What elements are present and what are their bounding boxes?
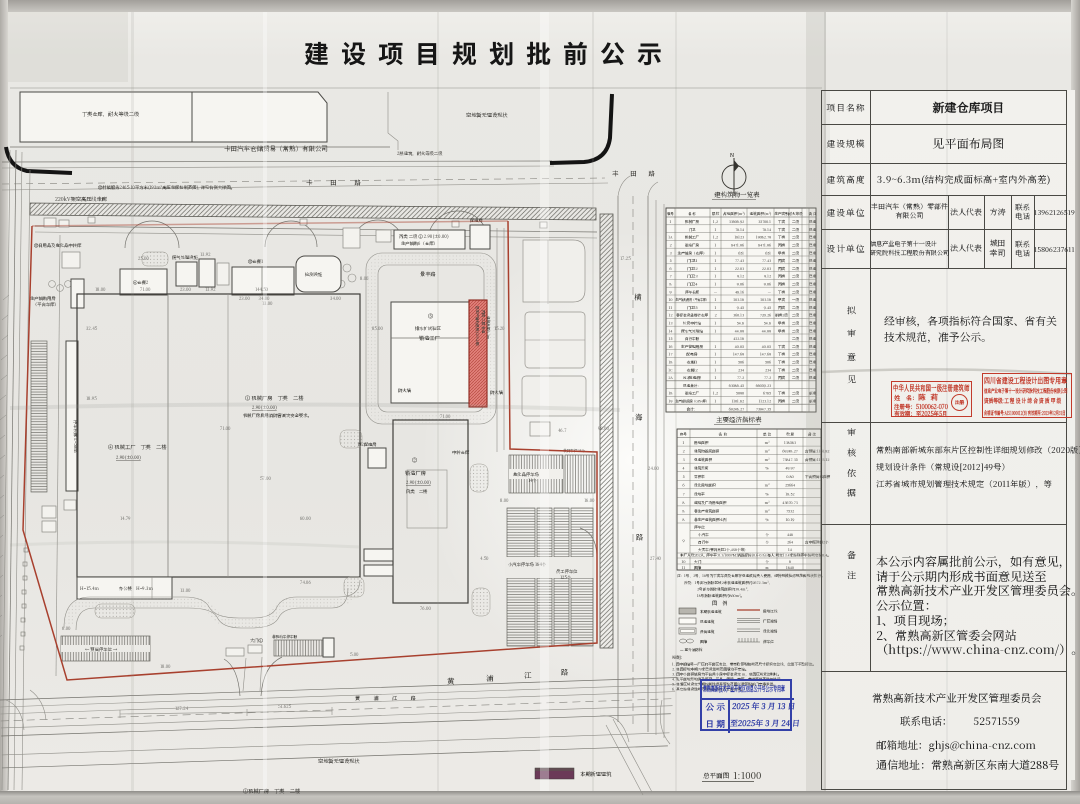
svg-text:66059.23: 66059.23 (756, 384, 771, 389)
svg-text:220kV架空高压线走廊: 220kV架空高压线走廊 (55, 196, 107, 203)
svg-text:14个: 14个 (528, 478, 537, 484)
svg-text:18.95: 18.95 (86, 396, 97, 402)
svg-text:1: 1 (714, 368, 717, 373)
svg-text:25664: 25664 (785, 484, 796, 489)
svg-text:40.05: 40.05 (762, 345, 771, 350)
svg-text:77.43: 77.43 (762, 259, 771, 264)
svg-text:18: 18 (668, 361, 673, 366)
svg-text:用地面积: 用地面积 (693, 440, 709, 446)
svg-text:停车长廊 L=50m: 停车长廊 L=50m (72, 419, 79, 452)
svg-text:10.19: 10.19 (785, 518, 795, 523)
svg-text:63086.45: 63086.45 (729, 384, 744, 389)
svg-text:非机动车停车棚: 非机动车停车棚 (271, 634, 298, 640)
svg-text:14.79: 14.79 (120, 516, 131, 522)
svg-text:员工停车位: 员工停车位 (555, 568, 578, 575)
svg-text:建构筑物一览表: 建构筑物一览表 (713, 190, 760, 199)
svg-text:13.92: 13.92 (205, 287, 216, 293)
svg-text:m²: m² (765, 500, 771, 506)
svg-text:103.16: 103.16 (759, 298, 771, 303)
svg-text:门卫4: 门卫4 (687, 282, 699, 288)
svg-text:40.05: 40.05 (735, 345, 744, 350)
svg-text:二级: 二级 (792, 227, 800, 233)
svg-text:丰 田 路: 丰 田 路 (612, 169, 660, 178)
svg-text:大客车(带卸货区1个,4S6个等): 大客车(带卸货区1个,4S6个等) (697, 547, 746, 553)
svg-text:9.12: 9.12 (764, 275, 771, 280)
svg-text:⑬仓棚1: ⑬仓棚1 (248, 259, 264, 265)
svg-text:④ 机械工厂 丁类 二楼: ④ 机械工厂 丁类 二楼 (108, 444, 167, 451)
svg-text:二级: 二级 (792, 219, 800, 225)
svg-text:门卫2: 门卫2 (687, 266, 698, 272)
svg-text:总建筑面积: 总建筑面积 (694, 457, 712, 463)
svg-text:风类 二楼: 风类 二楼 (405, 489, 428, 495)
svg-text:1: 1 (714, 275, 717, 280)
svg-text:m²: m² (765, 508, 771, 514)
svg-text:名 称: 名 称 (687, 211, 697, 217)
svg-text:门卫: 门卫 (689, 227, 696, 233)
svg-text:丙类: 丙类 (777, 266, 786, 272)
svg-text:数 量: 数 量 (786, 431, 795, 437)
svg-text:2: 2 (714, 314, 716, 319)
svg-text:单 位: 单 位 (762, 431, 772, 437)
svg-text:m²: m² (765, 440, 771, 446)
svg-text:道路及广场用地面积: 道路及广场用地面积 (693, 500, 727, 506)
svg-text:8.00: 8.00 (360, 276, 369, 282)
svg-text:丁类: 丁类 (777, 352, 786, 358)
svg-text:二级: 二级 (792, 344, 800, 350)
svg-text:2.90(±0.00): 2.90(±0.00) (406, 480, 431, 486)
svg-text:生产辅房（仓库）: 生产辅房（仓库） (676, 250, 706, 256)
svg-text:35700.1: 35700.1 (758, 220, 771, 225)
svg-text:耐火等级: 耐火等级 (787, 211, 803, 217)
svg-text:机械厂房启用消防窗减灾安全要求。: 机械厂房启用消防窗减灾安全要求。 (243, 413, 312, 419)
svg-text:18: 18 (668, 392, 673, 397)
svg-text:建筑物基底面积: 建筑物基底面积 (694, 449, 720, 455)
svg-text:19082.79: 19082.79 (755, 236, 771, 241)
svg-text:大门: 大门 (693, 559, 702, 565)
svg-text:建筑高度6.3m: 建筑高度6.3m (485, 316, 491, 339)
svg-text:10: 10 (681, 560, 686, 565)
svg-text:m²: m² (765, 483, 771, 489)
svg-text:生产辅助用房（平台车库）: 生产辅助用房（平台车库） (675, 297, 709, 303)
svg-text:N: N (729, 152, 735, 159)
svg-text:1: 1 (714, 244, 717, 249)
svg-text:8471.96: 8471.96 (758, 244, 771, 249)
svg-text:15: 15 (668, 337, 673, 342)
svg-text:建筑密度: 建筑密度 (694, 466, 709, 472)
svg-text:74.06: 74.06 (300, 580, 312, 586)
svg-text:44.99: 44.99 (762, 329, 771, 334)
svg-text:黄 浦 江 路: 黄 浦 江 路 (355, 695, 422, 702)
svg-text:6: 6 (789, 560, 791, 565)
svg-text:3: 3 (669, 251, 671, 256)
svg-text:检测设施: 检测设施 (304, 272, 323, 278)
svg-text:1: 1 (714, 251, 717, 256)
svg-text:77.43: 77.43 (735, 259, 744, 264)
svg-text:19: 19 (668, 400, 673, 405)
svg-text:保留建筑: 保留建筑 (699, 629, 715, 635)
svg-text:15.20: 15.20 (494, 326, 505, 332)
svg-text:1: 1 (714, 361, 717, 366)
svg-text:1: 1 (714, 329, 717, 334)
svg-text:73847.35: 73847.35 (782, 458, 797, 463)
svg-text:234: 234 (765, 368, 772, 373)
svg-text:卡田汽车仓储贸易（常熟）有限公司: 卡田汽车仓储贸易（常熟）有限公司 (224, 144, 329, 153)
svg-text:4.50: 4.50 (480, 556, 489, 562)
svg-text:二级: 二级 (792, 360, 800, 366)
svg-text:路: 路 (560, 667, 569, 678)
svg-text:9.06: 9.06 (737, 283, 744, 288)
svg-text:9: 9 (682, 539, 684, 544)
svg-text:浦: 浦 (486, 673, 494, 684)
svg-text:空地暂无建设现状: 空地暂无建设现状 (317, 758, 360, 765)
svg-text:2.90(±0.00): 2.90(±0.00) (116, 455, 141, 461)
svg-text:二级: 二级 (792, 305, 800, 311)
svg-text:1: 1 (682, 441, 685, 446)
svg-text:147.69: 147.69 (732, 353, 744, 358)
svg-text:非生产建筑面积比例: 非生产建筑面积比例 (693, 517, 727, 523)
svg-text:1: 1 (714, 283, 717, 288)
svg-text:危化品停车场: 危化品停车场 (513, 471, 539, 478)
svg-text:32.45: 32.45 (86, 326, 97, 332)
svg-text:层数: 层数 (711, 211, 721, 217)
svg-text:9.45: 9.45 (764, 306, 771, 311)
svg-text:1101.82: 1101.82 (731, 400, 744, 405)
svg-text:7532: 7532 (786, 509, 794, 514)
svg-text:77.2: 77.2 (737, 376, 744, 381)
svg-text:m²: m² (765, 449, 771, 455)
svg-text:1: 1 (714, 400, 717, 405)
svg-text:丙类: 丙类 (777, 282, 786, 288)
svg-text:绿化道路: 绿化道路 (762, 629, 778, 635)
svg-text:生产类别: 生产类别 (773, 211, 789, 217)
svg-text:5090: 5090 (736, 392, 744, 397)
svg-text:丁类: 丁类 (777, 391, 786, 397)
svg-text:丁类: 丁类 (777, 289, 786, 295)
svg-text:围墙: 围墙 (700, 639, 708, 645)
svg-text:容积率: 容积率 (693, 474, 705, 480)
svg-text:69248.27: 69248.27 (782, 450, 797, 455)
svg-text:44.99: 44.99 (735, 329, 744, 334)
svg-text:二级: 二级 (792, 367, 800, 373)
svg-text:防火墙: 防火墙 (398, 387, 412, 394)
svg-text:78.14: 78.14 (762, 228, 772, 233)
svg-text:②: ② (412, 457, 418, 464)
svg-text:绿地率: 绿地率 (693, 491, 705, 497)
svg-text:黄: 黄 (446, 676, 455, 687)
svg-text:6: 6 (682, 484, 684, 489)
svg-text:二级: 二级 (792, 375, 800, 381)
svg-text:⑥仓棚2: ⑥仓棚2 (133, 280, 149, 286)
svg-text:已建建筑: 已建建筑 (700, 619, 715, 625)
svg-text:厂区道路: 厂区道路 (762, 619, 778, 625)
svg-text:锻造工厂: 锻造工厂 (685, 391, 699, 397)
svg-text:个: 个 (764, 559, 769, 565)
svg-text:门卫1: 门卫1 (687, 258, 698, 264)
svg-text:71.00: 71.00 (220, 426, 231, 432)
svg-text:2: 2 (682, 450, 684, 455)
svg-text:33606.92: 33606.92 (729, 220, 744, 225)
svg-text:门卫3: 门卫3 (687, 274, 698, 280)
svg-text:配电房: 配电房 (685, 352, 697, 358)
svg-text:18号拆除建筑面积约860m²。: 18号拆除建筑面积约860m²。 (696, 593, 744, 599)
svg-text:5: 5 (682, 475, 684, 480)
svg-text:H=15.4m: H=15.4m (79, 586, 99, 592)
svg-text:49.97: 49.97 (785, 467, 794, 472)
svg-text:9.12: 9.12 (737, 275, 744, 280)
svg-text:办公楼 H=9.3m: 办公楼 H=9.3m (118, 586, 153, 592)
svg-text:651: 651 (765, 251, 771, 256)
svg-text:甲类: 甲类 (778, 328, 786, 334)
svg-text:8.00: 8.00 (500, 498, 509, 504)
svg-text:自行车棚: 自行车棚 (685, 336, 699, 342)
svg-text:1: 1 (714, 298, 717, 303)
svg-text:3: 3 (682, 458, 684, 463)
svg-text:⑲生产辅助用房(GPS4库): ⑲生产辅助用房(GPS4库) (474, 306, 480, 346)
svg-text:9.06: 9.06 (764, 283, 771, 288)
svg-text:垃圾中转站: 垃圾中转站 (682, 321, 701, 327)
svg-text:6785: 6785 (763, 392, 771, 397)
svg-text:17: 17 (668, 353, 673, 358)
svg-text:自行车: 自行车 (698, 540, 709, 546)
svg-text:丁类: 丁类 (777, 344, 786, 350)
svg-text:8471.96: 8471.96 (731, 244, 744, 249)
svg-text:⑬村镇服务2465·10平方米(193m²高压走廊控制范围): ⑬村镇服务2465·10平方米(193m²高压走廊控制范围), 详见右侧大样图。 (98, 184, 235, 191)
svg-text:13.00: 13.00 (180, 588, 191, 594)
svg-text:仓棚2: 仓棚2 (687, 367, 698, 373)
svg-text:二级: 二级 (792, 266, 800, 272)
svg-text:48.16: 48.16 (735, 290, 744, 295)
svg-text:丁类: 丁类 (777, 360, 786, 366)
svg-text:651: 651 (738, 251, 744, 256)
svg-text:二级: 二级 (792, 250, 800, 256)
svg-text:147.69: 147.69 (759, 353, 771, 358)
svg-text:1:1000: 1:1000 (733, 769, 761, 782)
svg-text:丙类: 丙类 (777, 399, 786, 405)
svg-text:46.7: 46.7 (558, 428, 567, 434)
svg-text:1: 1 (714, 353, 717, 358)
svg-text:5.00: 5.00 (350, 652, 359, 658)
svg-text:占地面积(m²): 占地面积(m²) (723, 211, 745, 217)
svg-text:18123: 18123 (734, 236, 744, 241)
svg-text:丁类: 丁类 (777, 235, 786, 241)
svg-text:85.00: 85.00 (372, 326, 384, 332)
svg-text:停车长廊: 停车长廊 (684, 289, 699, 295)
svg-text:71.00: 71.00 (140, 287, 151, 293)
svg-text:127.24: 127.24 (175, 706, 189, 712)
svg-text:69248.27: 69248.27 (729, 407, 744, 412)
svg-text:丙类: 丙类 (777, 243, 786, 249)
svg-text:丙类: 丙类 (777, 375, 786, 381)
svg-text:序号: 序号 (679, 431, 688, 437)
svg-text:264: 264 (787, 541, 794, 546)
svg-text:机械厂房: 机械厂房 (684, 219, 699, 225)
svg-text:125个: 125个 (560, 575, 572, 581)
svg-text:18.00: 18.00 (160, 664, 171, 670)
svg-text:m: m (765, 566, 769, 571)
svg-text:二级: 二级 (792, 352, 800, 358)
svg-text:二级: 二级 (792, 321, 800, 327)
svg-text:25.00: 25.00 (138, 256, 150, 262)
svg-text:已建合计：: 已建合计： (683, 383, 701, 389)
svg-text:小汽车: 小汽车 (697, 532, 709, 538)
svg-text:27.40: 27.40 (650, 556, 662, 562)
svg-text:二级: 二级 (792, 274, 800, 280)
svg-text:门卫5: 门卫5 (687, 305, 698, 311)
svg-text:① 机械厂房 丁类 二楼: ① 机械厂房 丁类 二楼 (245, 395, 304, 402)
svg-text:138583: 138583 (783, 441, 796, 446)
svg-text:横: 横 (634, 292, 642, 303)
svg-text:停车位: 停车位 (693, 525, 705, 531)
svg-text:7: 7 (683, 492, 685, 497)
svg-text:← 预留停车位 →: ← 预留停车位 → (85, 646, 118, 653)
svg-text:1840: 1840 (785, 566, 794, 571)
svg-text:甲类: 甲类 (778, 250, 786, 256)
svg-text:71.00: 71.00 (440, 414, 451, 420)
svg-text:22.03: 22.03 (762, 267, 771, 272)
svg-text:机械工厂: 机械工厂 (684, 235, 699, 241)
svg-text:（平台车库）: （平台车库） (33, 301, 59, 308)
svg-text:412.16: 412.16 (733, 337, 744, 342)
svg-text:13: 13 (668, 322, 673, 327)
svg-text:1: 1 (714, 259, 717, 264)
svg-text:1,2: 1,2 (712, 236, 718, 241)
svg-text:景丰路: 景丰路 (420, 271, 436, 278)
svg-text:1: 1 (669, 220, 672, 225)
svg-text:注：1号、2号、18号为丁类车间及仓库在总建成后投入使用，迎: 注：1号、2号、18号为丁类车间及仓库在总建成后投入使用，迎接规模检修规范和现状… (677, 573, 825, 579)
svg-text:N2配电房: N2配电房 (683, 375, 701, 381)
svg-text:34.00: 34.00 (330, 296, 342, 302)
svg-text:22.03: 22.03 (735, 267, 744, 272)
svg-text:1C: 1C (667, 368, 673, 373)
svg-text:二级: 二级 (792, 243, 800, 249)
svg-text:1123.12: 1123.12 (758, 400, 771, 405)
svg-text:主要经济指标表: 主要经济指标表 (716, 415, 762, 424)
svg-text:360.13: 360.13 (733, 314, 744, 319)
svg-text:506: 506 (765, 361, 771, 366)
svg-text:二级: 二级 (792, 399, 800, 405)
svg-text:73947.35: 73947.35 (756, 407, 771, 412)
svg-text:废水气处理站: 废水气处理站 (680, 328, 703, 334)
svg-text:△ 室外消防栓: △ 室外消防栓 (680, 647, 703, 653)
svg-text:丙类: 丙类 (777, 258, 786, 264)
svg-text:1A: 1A (667, 236, 673, 241)
svg-text:11: 11 (668, 306, 673, 311)
svg-text:二级: 二级 (792, 336, 800, 342)
svg-text:非生产建筑面积: 非生产建筑面积 (693, 508, 720, 514)
svg-text:98.00: 98.00 (597, 426, 610, 432)
svg-text:空地暂无建设现状: 空地暂无建设现状 (465, 112, 508, 119)
svg-text:钢类2级: 钢类2级 (774, 313, 788, 319)
svg-text:77.2: 77.2 (764, 376, 771, 381)
svg-text:大门①: 大门① (250, 638, 264, 644)
svg-text:废气处理设施: 废气处理设施 (171, 254, 198, 261)
svg-text:甲类: 甲类 (778, 297, 786, 303)
svg-text:1: 1 (714, 376, 717, 381)
svg-text:锻造厂房: 锻造厂房 (405, 470, 427, 477)
svg-text:二级: 二级 (792, 328, 800, 334)
svg-text:丙类: 丙类 (777, 274, 786, 280)
svg-text:甲类: 甲类 (778, 321, 786, 327)
svg-text:二级: 二级 (792, 282, 800, 288)
svg-text:54.8: 54.8 (737, 322, 744, 327)
svg-text:1,2: 1,2 (712, 392, 718, 397)
svg-text:1,2: 1,2 (712, 220, 718, 225)
svg-text:涉及：1号部分拆除区域2米新建建筑面积约2672.3m²，: 涉及：1号部分拆除区域2米新建建筑面积约2672.3m²， (684, 580, 772, 586)
svg-text:二级: 二级 (792, 289, 800, 295)
svg-text:9: 9 (669, 290, 671, 295)
svg-text:448: 448 (787, 533, 793, 538)
svg-text:8: 8 (682, 509, 684, 514)
svg-text:24.00: 24.00 (648, 466, 660, 472)
svg-text:围墙: 围墙 (694, 565, 702, 571)
svg-text:用地红线: 用地红线 (762, 609, 779, 615)
svg-text:停车位: 停车位 (762, 639, 774, 645)
svg-text:图 例: 图 例 (712, 600, 728, 607)
svg-text:生产管理用房: 生产管理用房 (680, 344, 703, 350)
svg-text:18.00: 18.00 (95, 287, 106, 293)
svg-text:9.45: 9.45 (737, 306, 744, 311)
svg-text:丙类 二级 ① 2.90(±0.00): 丙类 二级 ① 2.90(±0.00) (398, 233, 449, 240)
svg-text:江: 江 (524, 670, 532, 681)
svg-text:1: 1 (714, 306, 717, 311)
svg-text:丁类: 丁类 (777, 227, 786, 233)
svg-text:二级: 二级 (792, 391, 800, 397)
svg-text:1: 1 (714, 267, 717, 272)
svg-text:506: 506 (738, 361, 744, 366)
svg-text:生产辅助6（仓库）: 生产辅助6（仓库） (401, 241, 438, 247)
svg-text:绿化用地面积: 绿化用地面积 (693, 483, 716, 489)
svg-text:0.80: 0.80 (786, 475, 793, 480)
svg-text:5: 5 (669, 259, 671, 264)
svg-text:7: 7 (670, 275, 672, 280)
svg-text:海: 海 (635, 412, 643, 423)
svg-text:2A: 2A (668, 376, 673, 381)
svg-text:二级: 二级 (792, 258, 800, 264)
svg-text:本期新建建筑: 本期新建建筑 (699, 609, 722, 615)
svg-text:总平面图: 总平面图 (703, 771, 730, 780)
svg-text:⑬日用品及危化品中转库: ⑬日用品及危化品中转库 (34, 242, 82, 249)
svg-text:1: 1 (714, 345, 717, 350)
svg-text:个: 个 (764, 540, 769, 546)
svg-text:⑤: ⑤ (428, 313, 434, 320)
svg-text:12: 12 (668, 314, 673, 319)
svg-text:锻造厂房: 锻造厂房 (685, 243, 699, 249)
svg-text:编号: 编号 (666, 211, 675, 217)
svg-text:103.16: 103.16 (732, 298, 744, 303)
svg-text:建筑面积(m²): 建筑面积(m²) (750, 211, 772, 217)
svg-text:54.8: 54.8 (764, 322, 771, 327)
svg-text:二级: 二级 (792, 313, 800, 319)
svg-text:23.00: 23.00 (180, 287, 192, 293)
svg-text:6: 6 (669, 267, 671, 272)
svg-text:m²: m² (765, 457, 771, 463)
svg-text:仓棚1: 仓棚1 (687, 360, 698, 366)
svg-text:8: 8 (682, 518, 684, 523)
svg-text:丁类: 丁类 (777, 367, 786, 373)
svg-text:合计：: 合计： (685, 406, 697, 412)
svg-text:丁类: 丁类 (777, 219, 786, 225)
svg-text:丙类: 丙类 (777, 305, 786, 311)
svg-text:234: 234 (738, 368, 745, 373)
svg-text:60.00: 60.00 (300, 516, 312, 522)
svg-text:76.00: 76.00 (420, 606, 432, 612)
svg-text:①机械厂房 丁类 二楼: ①机械厂房 丁类 二楼 (243, 788, 301, 795)
svg-text:18.52: 18.52 (785, 492, 795, 497)
svg-text:78.14: 78.14 (735, 228, 745, 233)
svg-text:17.25: 17.25 (620, 256, 631, 262)
svg-text:2: 2 (669, 244, 671, 249)
svg-text:16: 16 (668, 345, 673, 350)
